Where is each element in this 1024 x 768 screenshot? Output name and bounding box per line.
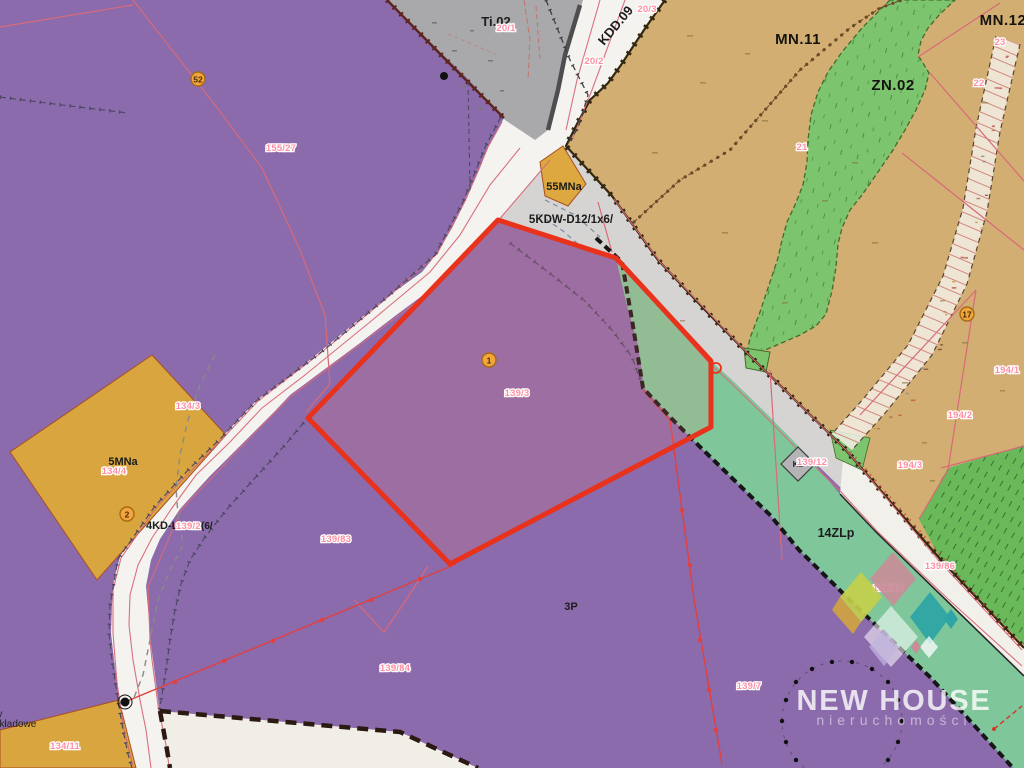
- svg-text:22: 22: [974, 78, 985, 89]
- svg-text:155/27: 155/27: [266, 143, 296, 154]
- svg-text:134/4: 134/4: [102, 466, 127, 477]
- svg-text:MN.11: MN.11: [775, 31, 821, 48]
- svg-text:1: 1: [487, 356, 492, 366]
- svg-text:14ZLp: 14ZLp: [818, 526, 855, 540]
- svg-text:134/3: 134/3: [176, 401, 201, 412]
- svg-text:194/3: 194/3: [898, 460, 923, 471]
- svg-text:134/11: 134/11: [50, 741, 80, 752]
- svg-text:139/7: 139/7: [737, 681, 762, 692]
- svg-text:20/1: 20/1: [496, 23, 516, 34]
- svg-text:MN.12: MN.12: [980, 12, 1024, 29]
- svg-text:20/2: 20/2: [584, 56, 603, 67]
- svg-text:23: 23: [995, 37, 1006, 48]
- svg-text:55MNa: 55MNa: [546, 181, 582, 193]
- svg-text:139/86: 139/86: [925, 561, 955, 572]
- svg-text:(6/: (6/: [201, 521, 213, 532]
- svg-text:ZN.02: ZN.02: [871, 77, 914, 94]
- svg-text:139/12: 139/12: [797, 457, 827, 468]
- svg-text:139/83: 139/83: [321, 534, 351, 545]
- svg-text:194/2: 194/2: [948, 410, 973, 421]
- svg-text:2: 2: [125, 510, 130, 520]
- svg-text:194/1: 194/1: [995, 365, 1020, 376]
- svg-text:52: 52: [193, 75, 203, 85]
- svg-text:139/84: 139/84: [380, 663, 411, 674]
- svg-text:17: 17: [962, 310, 972, 320]
- svg-text:4KD-L: 4KD-L: [146, 520, 179, 532]
- svg-text:5KDW-D12/1x6/: 5KDW-D12/1x6/: [529, 214, 614, 226]
- svg-text:dkładowe: dkładowe: [0, 719, 37, 730]
- svg-text:21: 21: [797, 142, 808, 153]
- svg-text:3P: 3P: [564, 601, 577, 613]
- svg-text:nieruchomości: nieruchomości: [816, 712, 971, 728]
- svg-text:139/2: 139/2: [176, 521, 201, 532]
- svg-text:139/3: 139/3: [505, 388, 530, 399]
- svg-text:20/3: 20/3: [637, 4, 656, 15]
